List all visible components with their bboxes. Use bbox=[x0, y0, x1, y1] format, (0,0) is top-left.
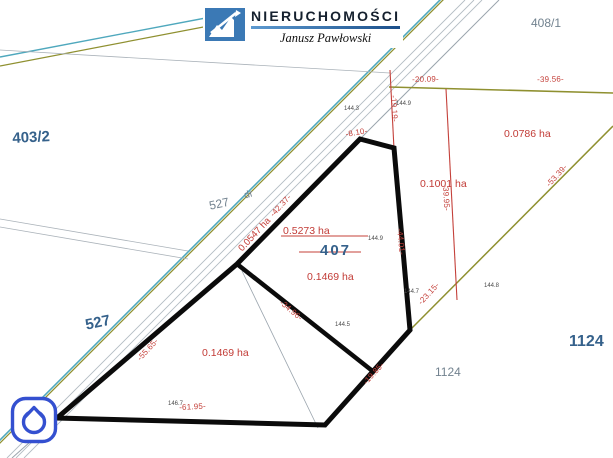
point-elevation: 144.7 bbox=[404, 289, 419, 295]
parcel-label-408-1: 408/1 bbox=[531, 17, 561, 29]
point-elevation: 144.5 bbox=[335, 322, 350, 328]
old-inner-boundary-line bbox=[242, 271, 318, 428]
area-label-1469-center: 0.1469 ha bbox=[307, 272, 354, 283]
point-elevation: 144.9 bbox=[368, 236, 383, 242]
house-in-rounded-square-icon bbox=[10, 396, 58, 444]
measure-44-01: -44.01- bbox=[395, 228, 406, 255]
area-label-0786: 0.0786 ha bbox=[504, 129, 551, 140]
area-label-1469-left: 0.1469 ha bbox=[202, 348, 249, 359]
parcel-label-1124-bold: 1124 bbox=[569, 334, 604, 350]
point-elevation: 144.9 bbox=[396, 101, 411, 107]
point-elevation: 146.7 bbox=[168, 401, 183, 407]
chart-growth-arrow-icon bbox=[205, 8, 245, 41]
measure-20-09: -20.09- bbox=[412, 76, 439, 84]
topleft-boundary-lines bbox=[0, 13, 390, 259]
agency-name: NIERUCHOMOŚCI bbox=[251, 8, 400, 24]
road-lines bbox=[0, 0, 499, 458]
logo-divider bbox=[251, 26, 400, 29]
measure-39-95: -39.95- bbox=[441, 184, 450, 211]
measure-39-56: -39.56- bbox=[537, 76, 564, 84]
agency-owner-name: Janusz Pawłowski bbox=[280, 31, 371, 46]
parcel-label-403-2: 403/2 bbox=[12, 129, 50, 146]
agency-logo: NIERUCHOMOŚCI Janusz Pawłowski bbox=[203, 6, 403, 48]
parcel-label-1124-small: 1124 bbox=[435, 366, 461, 378]
parcel-407-boundary bbox=[57, 139, 410, 425]
area-label-5273: 0.5273 ha bbox=[283, 226, 330, 237]
measure-61-95: -61.95- bbox=[179, 403, 206, 412]
cadastral-map: 403/2 527 527 dr 408/1 407 1124 1124 0.5… bbox=[0, 0, 613, 458]
parcel-label-407: 407 bbox=[320, 243, 351, 258]
measure-19-19: -19.19- bbox=[389, 95, 398, 122]
point-elevation: 144.8 bbox=[484, 283, 499, 289]
point-elevation: 144.3 bbox=[344, 106, 359, 112]
